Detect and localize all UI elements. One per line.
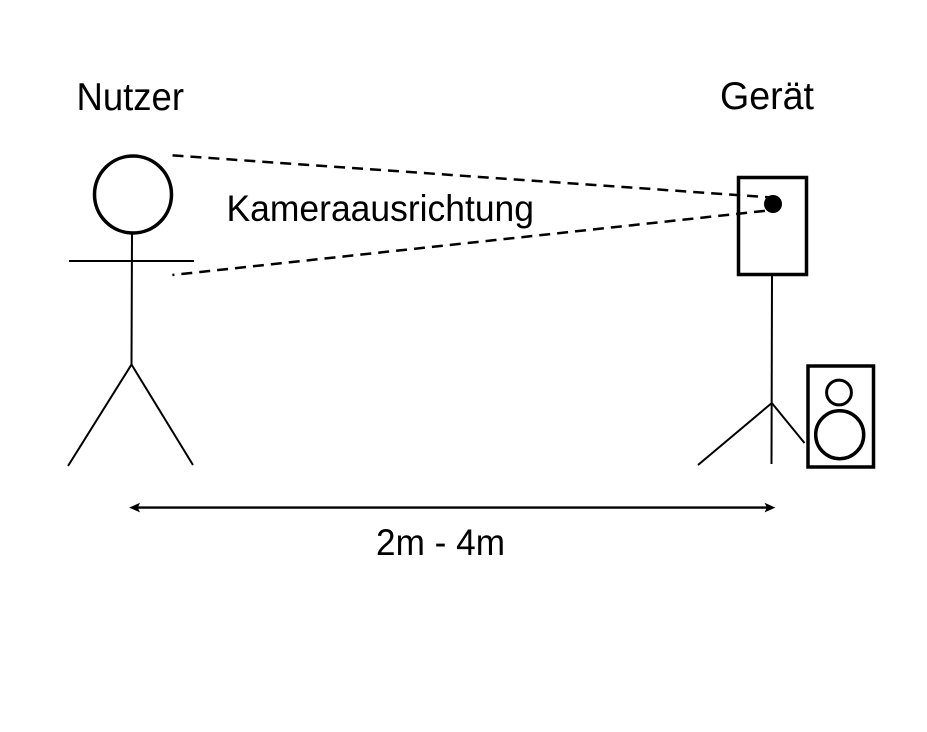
svg-text:Gerät: Gerät xyxy=(720,75,814,118)
svg-text:Nutzer: Nutzer xyxy=(77,76,185,119)
svg-text:Kameraausrichtung: Kameraausrichtung xyxy=(227,188,535,229)
svg-text:2m - 4m: 2m - 4m xyxy=(376,521,505,563)
